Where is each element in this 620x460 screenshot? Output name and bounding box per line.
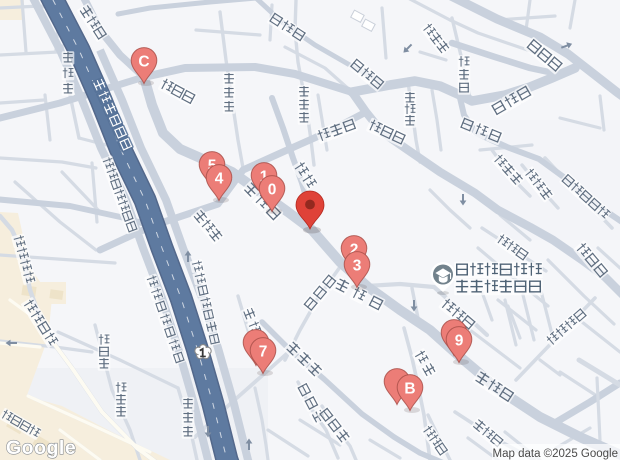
svg-text:B: B — [404, 381, 415, 398]
svg-text:3: 3 — [353, 258, 362, 275]
svg-text:4: 4 — [215, 171, 224, 188]
svg-text:Google: Google — [6, 437, 76, 459]
svg-text:Map data ©2025 Google: Map data ©2025 Google — [493, 448, 618, 460]
svg-text:C: C — [138, 54, 149, 71]
svg-text:0: 0 — [268, 182, 277, 199]
svg-text:9: 9 — [455, 333, 464, 350]
svg-text:7: 7 — [259, 344, 268, 361]
